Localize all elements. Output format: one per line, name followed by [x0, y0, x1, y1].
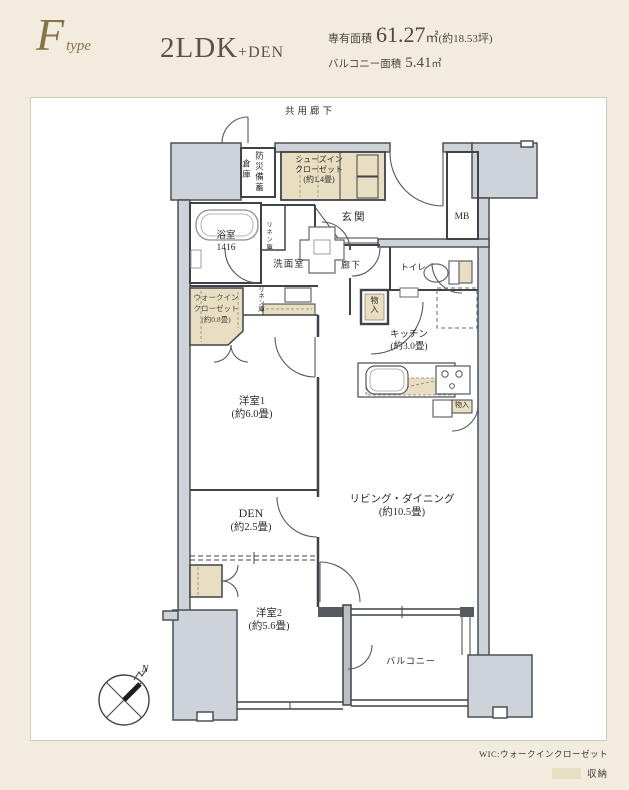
- type-letter: F: [36, 9, 64, 60]
- label-storage1: 物入: [370, 296, 378, 314]
- label-linen2: リネン庫: [256, 286, 263, 312]
- balcony-area-value: 5.41: [405, 55, 431, 71]
- washer-pan: [300, 227, 344, 273]
- label-den: DEN (約2.5畳): [230, 506, 271, 534]
- compass-n-label: N: [142, 664, 149, 677]
- label-common-corridor: 共用廊下: [285, 107, 335, 119]
- label-entrance: 玄関: [342, 211, 367, 224]
- layout-main: 2LDK: [160, 32, 238, 64]
- toilet-tank: [449, 261, 459, 284]
- compass: [99, 668, 149, 725]
- label-walk-in-closet: ウォークイン クローゼット (約0.8畳): [194, 293, 239, 326]
- exclusive-area-line: 専有面積 61.27㎡(約18.53坪): [328, 22, 493, 48]
- hall-counter: [400, 288, 418, 297]
- floorplan-page: Ftype 2LDK+DEN 専有面積 61.27㎡(約18.53坪) バルコニ…: [0, 0, 629, 790]
- label-bedroom1: 洋室1 (約6.0畳): [231, 395, 272, 421]
- bath-counter: [191, 250, 201, 268]
- label-toilet: トイレ: [400, 262, 426, 273]
- label-storage2: 物入: [455, 401, 469, 410]
- label-linen1: リネン庫: [264, 221, 271, 251]
- label-kitchen: キッチン (約3.0畳): [390, 330, 428, 354]
- legend-wic-note: WIC:ウォークインクローゼット: [479, 748, 608, 760]
- floor-plan-svg: [30, 97, 607, 741]
- kitchen-storage-box: [433, 400, 452, 417]
- legend: WIC:ウォークインクローゼット 収納: [479, 748, 608, 780]
- stove: [436, 366, 470, 394]
- storage-color-swatch: [552, 768, 581, 779]
- area-info: 専有面積 61.27㎡(約18.53坪) バルコニー面積 5.41㎡: [328, 22, 493, 72]
- type-suffix: type: [66, 38, 91, 54]
- fridge-space: [437, 288, 477, 328]
- label-shoes-in-closet: シューズイン クローゼット (約1.4畳): [295, 155, 343, 185]
- exclusive-area-label: 専有面積: [328, 33, 372, 45]
- toilet-shelf: [459, 261, 472, 283]
- toilet-bowl: [424, 264, 448, 282]
- exclusive-area-unit: ㎡: [426, 30, 439, 45]
- label-bedroom2: 洋室2 (約5.6畳): [248, 607, 289, 633]
- label-bathroom: 浴室 1416: [216, 231, 235, 255]
- linen2-area: [263, 304, 315, 315]
- label-storage-warehouse-1: 防災備蓄: [255, 151, 264, 193]
- legend-storage-row: 収納: [479, 766, 608, 780]
- kitchen-sink: [366, 366, 408, 394]
- legend-storage-label: 収納: [587, 766, 608, 780]
- layout-sub: +DEN: [238, 44, 284, 61]
- vanity: [285, 288, 311, 302]
- exclusive-area-value: 61.27: [376, 22, 426, 47]
- type-logo: Ftype: [36, 12, 91, 58]
- label-hallway: 廊下: [341, 260, 361, 271]
- balcony-area-unit: ㎡: [432, 59, 442, 70]
- label-washroom: 洗面室: [273, 260, 305, 272]
- label-balcony: バルコニー: [386, 656, 436, 667]
- exclusive-area-tsubo: (約18.53坪): [439, 33, 493, 45]
- bedroom2-closet: [190, 565, 222, 597]
- label-living-dining: リビング・ダイニング (約10.5畳): [350, 493, 455, 519]
- balcony-partition: [343, 605, 351, 705]
- label-storage-warehouse-2: 倉庫: [242, 159, 251, 180]
- balcony-area-line: バルコニー面積 5.41㎡: [328, 54, 493, 72]
- label-meter-box: MB: [455, 212, 470, 224]
- layout-title: 2LDK+DEN: [160, 32, 284, 65]
- balcony-area-label: バルコニー面積: [328, 59, 401, 70]
